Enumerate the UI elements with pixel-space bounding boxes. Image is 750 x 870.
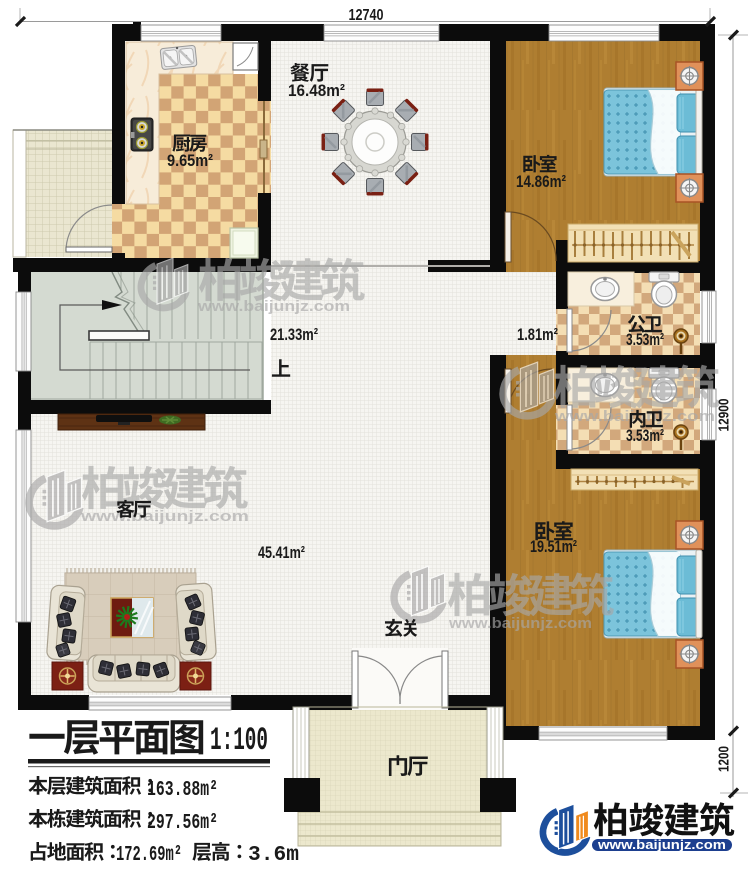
- svg-text:1200: 1200: [716, 746, 733, 772]
- svg-text:1:100: 1:100: [210, 722, 268, 759]
- svg-text:163.88m²: 163.88m²: [147, 779, 218, 802]
- svg-text:www.baijunjz.com: www.baijunjz.com: [197, 298, 350, 315]
- svg-text:172.69m²: 172.69m²: [116, 844, 182, 867]
- svg-text:3.6m: 3.6m: [248, 844, 299, 867]
- svg-text:1.81m²: 1.81m²: [517, 325, 558, 344]
- svg-text:21.33m²: 21.33m²: [270, 325, 318, 344]
- svg-text:14.86m²: 14.86m²: [516, 172, 566, 191]
- svg-text:12740: 12740: [349, 7, 384, 24]
- svg-text:45.41m²: 45.41m²: [258, 543, 305, 562]
- svg-text:www.baijunjz.com: www.baijunjz.com: [80, 508, 249, 525]
- svg-text:297.56m²: 297.56m²: [147, 812, 218, 835]
- svg-text:12900: 12900: [716, 399, 733, 432]
- svg-text:3.53m²: 3.53m²: [626, 426, 664, 445]
- svg-text:19.51m²: 19.51m²: [530, 537, 577, 556]
- svg-text:www.baijunjz.com: www.baijunjz.com: [597, 837, 726, 852]
- svg-text:3.53m²: 3.53m²: [626, 330, 664, 349]
- svg-text:9.65m²: 9.65m²: [167, 151, 213, 170]
- svg-text:www.baijunjz.com: www.baijunjz.com: [448, 615, 592, 632]
- svg-text:16.48m²: 16.48m²: [288, 81, 345, 100]
